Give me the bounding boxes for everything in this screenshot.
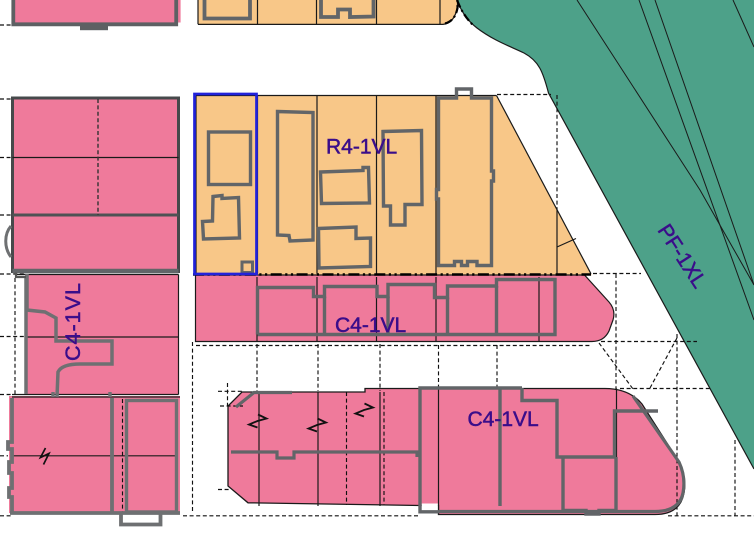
svg-text:R4-1VL: R4-1VL [326, 136, 397, 159]
svg-text:C4-1VL: C4-1VL [61, 282, 85, 361]
svg-text:C4-1VL: C4-1VL [335, 314, 406, 337]
svg-text:C4-1VL: C4-1VL [468, 408, 539, 431]
